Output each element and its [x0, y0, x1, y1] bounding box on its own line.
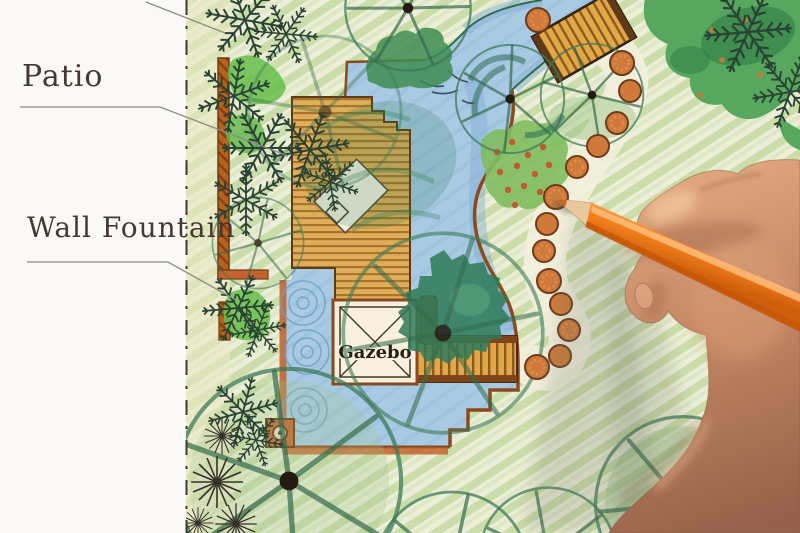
wall-fountain-label: Wall Fountain — [27, 211, 236, 244]
patio-label: Patio — [22, 59, 103, 94]
garden-plan-photo: Gazebo — [0, 0, 800, 533]
